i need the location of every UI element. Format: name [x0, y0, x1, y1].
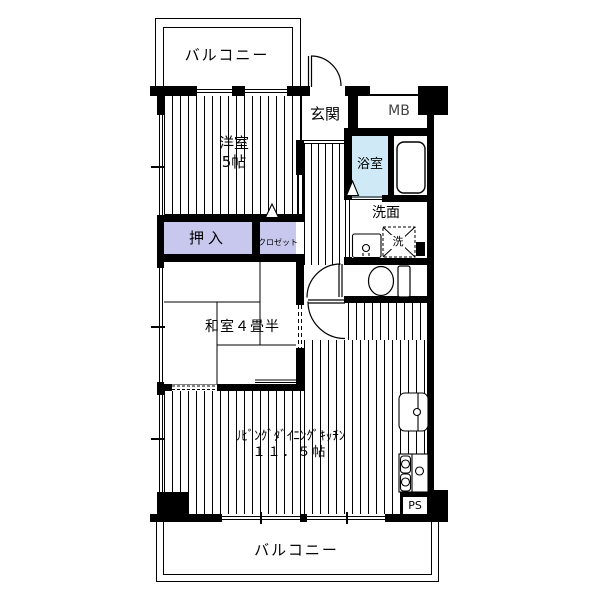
meter-box-top-line: [370, 94, 418, 96]
wall: [344, 258, 434, 265]
window: [245, 86, 287, 96]
wall: [388, 136, 394, 198]
bathtub-icon: [397, 142, 425, 193]
washroom-sliding-door: [346, 200, 350, 257]
window: [157, 268, 164, 382]
meter-box-label: MB: [378, 103, 420, 121]
wall: [164, 254, 304, 262]
toilet-room-floor: [352, 265, 427, 296]
balcony-bottom-label: バルコニー: [163, 541, 430, 560]
wall: [344, 128, 434, 136]
ldk-door-arc: [308, 300, 345, 339]
wall: [296, 262, 304, 305]
ldk-floor-upper: [348, 303, 427, 340]
window-tick: [151, 438, 165, 440]
wall: [296, 140, 304, 175]
window-tick: [151, 326, 165, 328]
closet-label: クロゼット: [258, 238, 298, 248]
wall: [296, 348, 304, 388]
wall: [382, 195, 434, 202]
wall: [157, 86, 164, 115]
entrance-label: 玄関: [302, 105, 348, 124]
ldk-label: ﾘﾋﾞﾝｸﾞﾀﾞｲﾆﾝｸﾞｷｯﾁﾝ１１．５帖: [195, 429, 385, 462]
wall: [344, 136, 352, 200]
bathroom-label: 浴室: [352, 157, 388, 173]
window-tick: [260, 512, 262, 524]
pipe-space-label: PS: [403, 497, 427, 514]
floorplan: バルコニー 洋室5帖 玄関 MB 浴室 洗面 洗 押入 クロゼット 和室４畳半 …: [0, 0, 600, 600]
window-tick: [151, 166, 165, 168]
window: [197, 86, 232, 96]
hallway-floor: [304, 144, 344, 265]
toilet-door-arc: [307, 264, 342, 298]
wall: [232, 86, 245, 96]
japanese-room-label: 和室４畳半: [180, 319, 305, 337]
entrance-door-arc: [309, 56, 342, 87]
ldk-floor-main: [304, 340, 427, 514]
washroom-label: 洗面: [362, 205, 410, 223]
wall-line: [297, 175, 299, 215]
wall-line: [302, 175, 304, 215]
window: [157, 115, 164, 215]
wall: [157, 384, 304, 391]
western-room-label: 洋室5帖: [184, 134, 284, 172]
wall-corner: [418, 86, 448, 115]
washing-machine-label: 洗: [391, 235, 405, 249]
wall: [157, 215, 164, 268]
window-tick: [346, 512, 348, 524]
oshiire-label: 押入: [164, 229, 252, 248]
wall: [348, 86, 358, 132]
wall: [287, 86, 310, 96]
window: [157, 395, 164, 492]
balcony-top-label: バルコニー: [163, 46, 291, 65]
washer-outlet-block: [416, 242, 425, 256]
wall: [164, 214, 304, 222]
wall: [344, 296, 434, 303]
